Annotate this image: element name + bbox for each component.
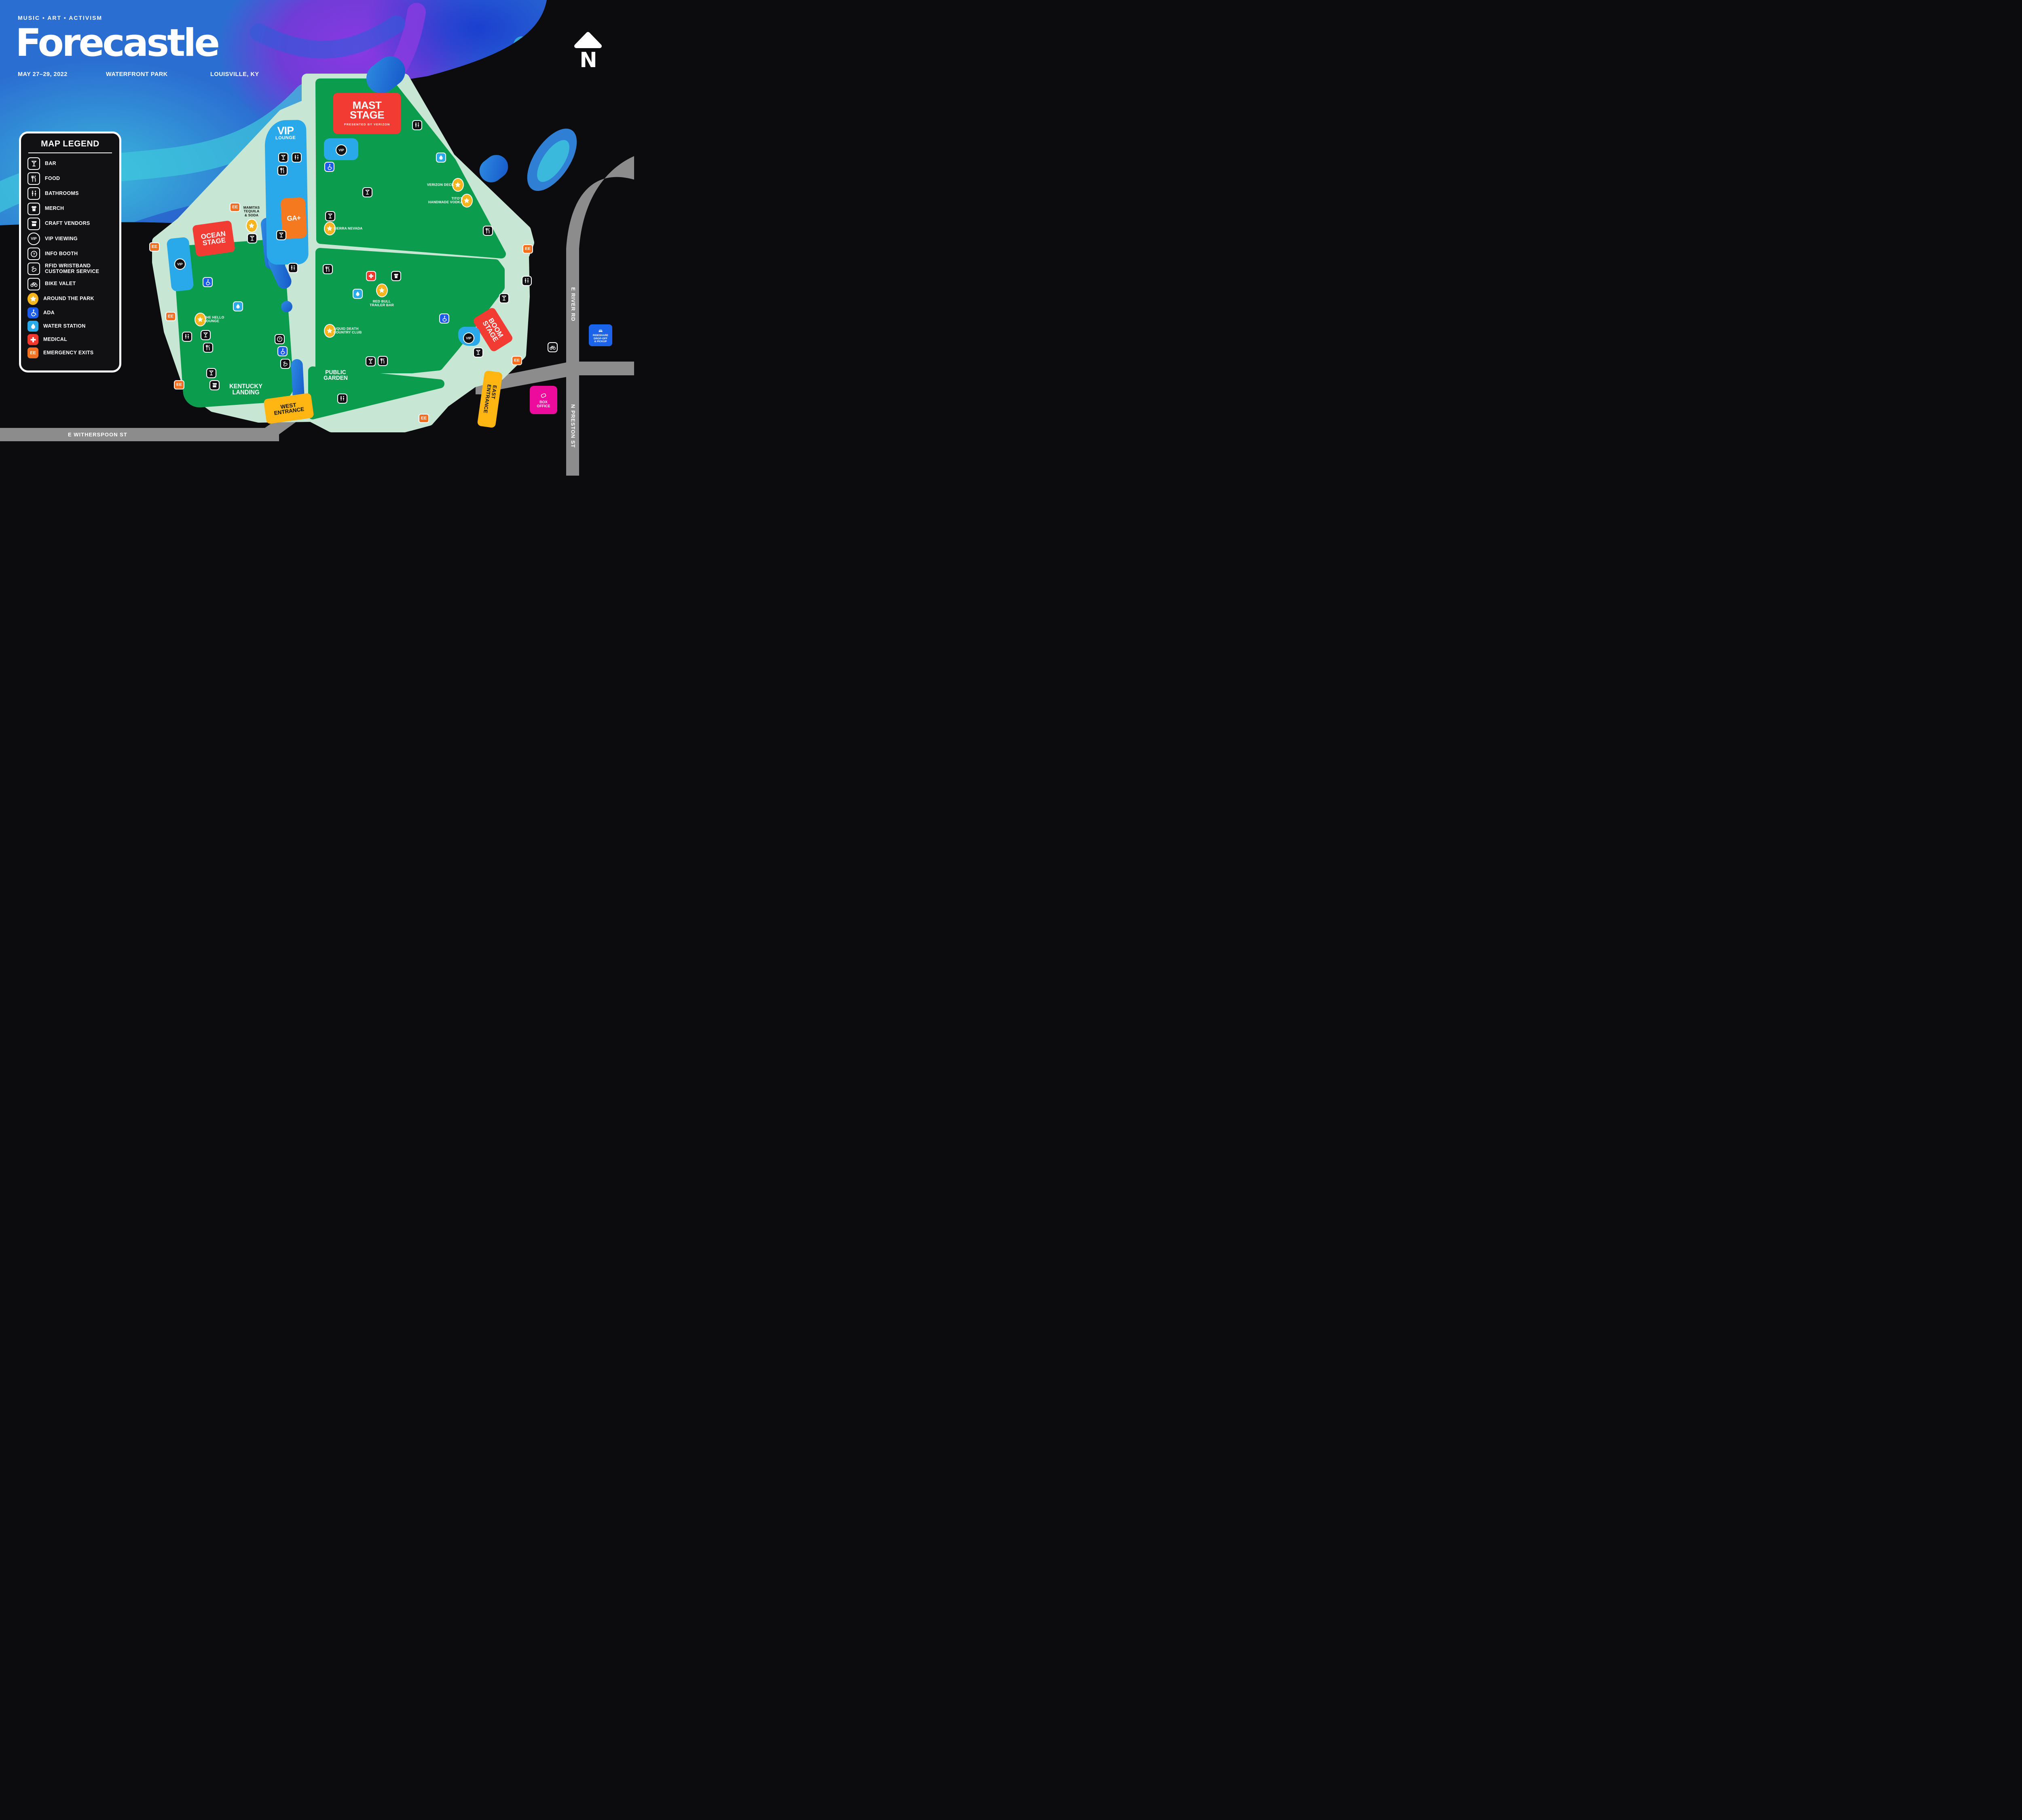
- bathrooms-icon: [292, 152, 302, 163]
- bar-icon: [499, 293, 509, 303]
- around-the-park-label: VERIZON DECK: [418, 183, 454, 186]
- ada-icon: [439, 313, 449, 324]
- bar-icon: [325, 211, 335, 221]
- around-the-park-label: SIERRA NEVADA: [334, 226, 370, 230]
- merch-icon: [391, 271, 401, 281]
- around-the-park-star: TITO'S HANDMADE VODKA: [461, 194, 473, 207]
- bar-icon: [473, 347, 483, 358]
- medical-icon: [366, 271, 376, 281]
- bar-icon: [206, 368, 216, 378]
- food-icon: [483, 226, 493, 236]
- ada-icon: [277, 346, 288, 356]
- info-icon: ?: [275, 334, 285, 344]
- food-icon: [378, 356, 388, 366]
- poi-layer: ?VIPVIPVIPMAMITAS TEQUILA & SODASIERRA N…: [0, 0, 634, 476]
- emergency-exit-badge: EE: [512, 356, 522, 365]
- bathrooms-icon: [412, 120, 422, 130]
- bar-icon: [247, 233, 257, 243]
- emergency-exit-badge: EE: [419, 414, 429, 423]
- around-the-park-star: THE HELLO LOUNGE: [195, 313, 206, 326]
- bike-icon: [548, 342, 558, 352]
- vip-icon: VIP: [174, 258, 186, 270]
- around-the-park-label: RED BULL TRAILER BAR: [364, 300, 400, 307]
- water-icon: [436, 152, 446, 163]
- food-icon: [277, 165, 288, 176]
- emergency-exit-badge: EE: [149, 242, 160, 252]
- water-icon: [353, 289, 363, 299]
- around-the-park-star: RED BULL TRAILER BAR: [376, 284, 388, 297]
- ada-icon: [324, 162, 334, 172]
- festival-map: MUSIC • ART • ACTIVISM Forecastle MAY 27…: [0, 0, 634, 476]
- around-the-park-star: MAMITAS TEQUILA & SODA: [246, 219, 258, 233]
- food-icon: [323, 264, 333, 274]
- bathrooms-icon: [182, 332, 192, 342]
- vip-icon: VIP: [336, 144, 347, 156]
- food-icon: [203, 343, 213, 353]
- around-the-park-label: LIQUID DEATH COUNTRY CLUB: [334, 327, 370, 335]
- around-the-park-star: LIQUID DEATH COUNTRY CLUB: [324, 324, 336, 338]
- emergency-exit-badge: EE: [174, 380, 184, 389]
- bathrooms-icon: [522, 276, 532, 286]
- vip-icon: VIP: [463, 332, 474, 344]
- svg-text:?: ?: [278, 337, 280, 341]
- emergency-exit-badge: EE: [522, 244, 533, 254]
- bar-icon: [362, 187, 372, 197]
- bathrooms-icon: [288, 263, 298, 273]
- rfid-icon: [280, 359, 290, 369]
- around-the-park-label: THE HELLO LOUNGE: [204, 316, 241, 324]
- bar-icon: [366, 356, 376, 366]
- ada-icon: [203, 277, 213, 287]
- craft-icon: [209, 380, 220, 390]
- around-the-park-star: SIERRA NEVADA: [324, 222, 336, 235]
- emergency-exit-badge: EE: [230, 203, 240, 212]
- emergency-exit-badge: EE: [165, 312, 176, 321]
- bar-icon: [276, 230, 286, 240]
- water-icon: [233, 301, 243, 311]
- around-the-park-star: VERIZON DECK: [452, 178, 464, 192]
- bar-icon: [278, 152, 288, 163]
- bar-icon: [201, 330, 211, 340]
- bathrooms-icon: [337, 394, 347, 404]
- around-the-park-label: TITO'S HANDMADE VODKA: [427, 197, 463, 205]
